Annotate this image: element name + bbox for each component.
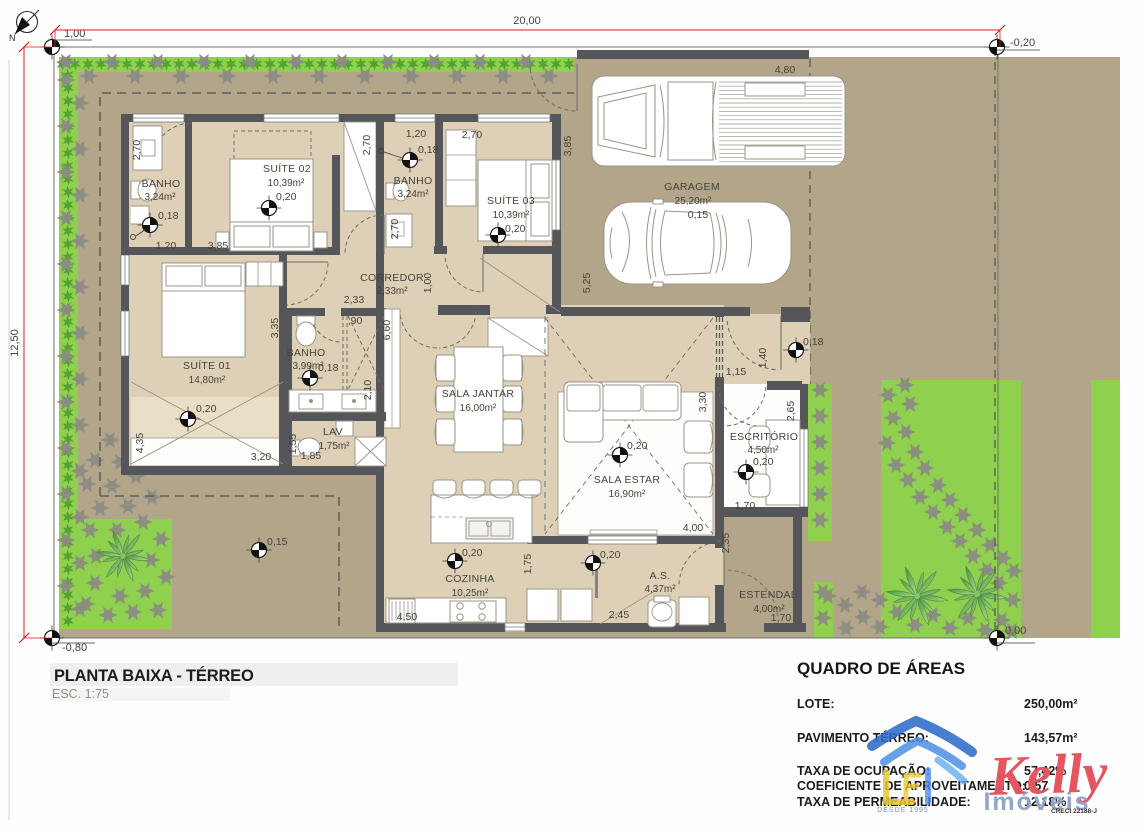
svg-text:SALA JANTAR: SALA JANTAR (442, 388, 515, 400)
svg-text:SALA ESTAR: SALA ESTAR (594, 474, 661, 486)
svg-text:3,85: 3,85 (562, 136, 574, 157)
svg-text:1,55: 1,55 (287, 434, 299, 455)
svg-text:2,70: 2,70 (389, 219, 401, 240)
svg-text:3,30: 3,30 (697, 392, 709, 413)
svg-text:SUÍTE 03: SUÍTE 03 (487, 194, 535, 207)
svg-text:BANHO: BANHO (142, 178, 181, 190)
svg-text:20,00: 20,00 (513, 15, 541, 27)
svg-text:SUÍTE 02: SUÍTE 02 (263, 162, 311, 175)
svg-text:N: N (9, 33, 16, 43)
svg-text:GARAGEM: GARAGEM (664, 181, 720, 193)
svg-text:1,70: 1,70 (735, 500, 756, 512)
svg-text:1,40: 1,40 (757, 348, 769, 369)
svg-text:250,00m²: 250,00m² (1024, 697, 1078, 711)
svg-text:14,80m²: 14,80m² (189, 375, 226, 386)
svg-text:SUÍTE 01: SUÍTE 01 (183, 359, 231, 372)
svg-text:2,35: 2,35 (720, 533, 732, 554)
svg-text:0,20: 0,20 (627, 440, 648, 452)
svg-text:1,75: 1,75 (522, 554, 534, 575)
svg-text:0,20: 0,20 (505, 223, 526, 235)
svg-text:3,85: 3,85 (208, 240, 229, 252)
svg-text:CRECI 22188-J: CRECI 22188-J (1051, 808, 1097, 815)
svg-text:-0,80: -0,80 (62, 642, 87, 654)
svg-text:QUADRO DE ÁREAS: QUADRO DE ÁREAS (797, 659, 965, 678)
svg-text:10,25m²: 10,25m² (452, 588, 489, 599)
svg-text:0,15: 0,15 (688, 209, 709, 221)
svg-text:0,20: 0,20 (462, 547, 483, 559)
svg-text:3,99m²: 3,99m² (292, 361, 324, 372)
svg-text:0,20: 0,20 (196, 403, 217, 415)
svg-text:4,35: 4,35 (134, 433, 146, 454)
svg-text:LOTE:: LOTE: (797, 697, 835, 711)
svg-text:1,20: 1,20 (156, 240, 177, 252)
svg-text:10,39m²: 10,39m² (493, 210, 530, 221)
svg-text:,90: ,90 (348, 315, 363, 327)
svg-text:BANHO: BANHO (394, 175, 433, 187)
svg-text:4,00m²: 4,00m² (753, 604, 785, 615)
svg-text:25,20m²: 25,20m² (675, 196, 712, 207)
svg-text:4,50m²: 4,50m² (747, 445, 779, 456)
svg-text:6,60: 6,60 (381, 320, 393, 341)
svg-text:PLANTA BAIXA - TÉRREO: PLANTA BAIXA - TÉRREO (54, 666, 254, 685)
svg-text:2,65: 2,65 (785, 401, 797, 422)
svg-text:2,10: 2,10 (362, 380, 374, 401)
svg-text:0,00: 0,00 (1005, 625, 1026, 637)
svg-text:2,45: 2,45 (609, 609, 630, 621)
svg-text:0,18: 0,18 (803, 336, 824, 348)
svg-text:1,75m²: 1,75m² (318, 441, 350, 452)
svg-text:-0,20: -0,20 (1010, 37, 1035, 49)
svg-text:16,00m²: 16,00m² (460, 403, 497, 414)
svg-text:3,20: 3,20 (251, 451, 272, 463)
svg-text:3,24m²: 3,24m² (397, 189, 429, 200)
svg-text:12,50: 12,50 (9, 329, 21, 357)
svg-text:LAV: LAV (323, 426, 343, 438)
svg-text:1,20: 1,20 (406, 128, 427, 140)
svg-text:0,18: 0,18 (158, 210, 179, 222)
svg-text:ESTENDAL: ESTENDAL (739, 589, 797, 601)
svg-text:CORREDOR: CORREDOR (360, 272, 424, 284)
svg-text:2,70: 2,70 (462, 129, 483, 141)
svg-text:0,20: 0,20 (276, 191, 297, 203)
svg-text:2,70: 2,70 (131, 140, 143, 161)
svg-text:2,70: 2,70 (361, 135, 373, 156)
svg-text:10,39m²: 10,39m² (268, 178, 305, 189)
svg-text:4,37m²: 4,37m² (644, 584, 676, 595)
svg-text:5,25: 5,25 (581, 273, 593, 294)
svg-text:4,50: 4,50 (397, 611, 418, 623)
svg-text:0,18: 0,18 (418, 144, 439, 156)
svg-text:0,20: 0,20 (753, 456, 774, 468)
svg-text:16,90m²: 16,90m² (609, 489, 646, 500)
svg-text:A.S.: A.S. (649, 570, 670, 582)
svg-text:1,15: 1,15 (726, 366, 747, 378)
svg-text:3,35: 3,35 (269, 318, 281, 339)
svg-text:BANHO: BANHO (287, 347, 326, 359)
svg-text:0,20: 0,20 (600, 549, 621, 561)
svg-text:COZINHA: COZINHA (445, 573, 494, 585)
svg-text:3,24m²: 3,24m² (144, 192, 176, 203)
svg-text:4,80: 4,80 (775, 64, 796, 76)
svg-text:ESCRITÓRIO: ESCRITÓRIO (730, 430, 798, 443)
svg-text:ESC. 1:75: ESC. 1:75 (52, 687, 109, 701)
svg-text:0,15: 0,15 (267, 536, 288, 548)
svg-text:2,33: 2,33 (344, 294, 365, 306)
svg-text:4,00: 4,00 (683, 522, 704, 534)
svg-text:DESDE 1995: DESDE 1995 (877, 807, 929, 814)
svg-text:2,33m²: 2,33m² (376, 286, 408, 297)
